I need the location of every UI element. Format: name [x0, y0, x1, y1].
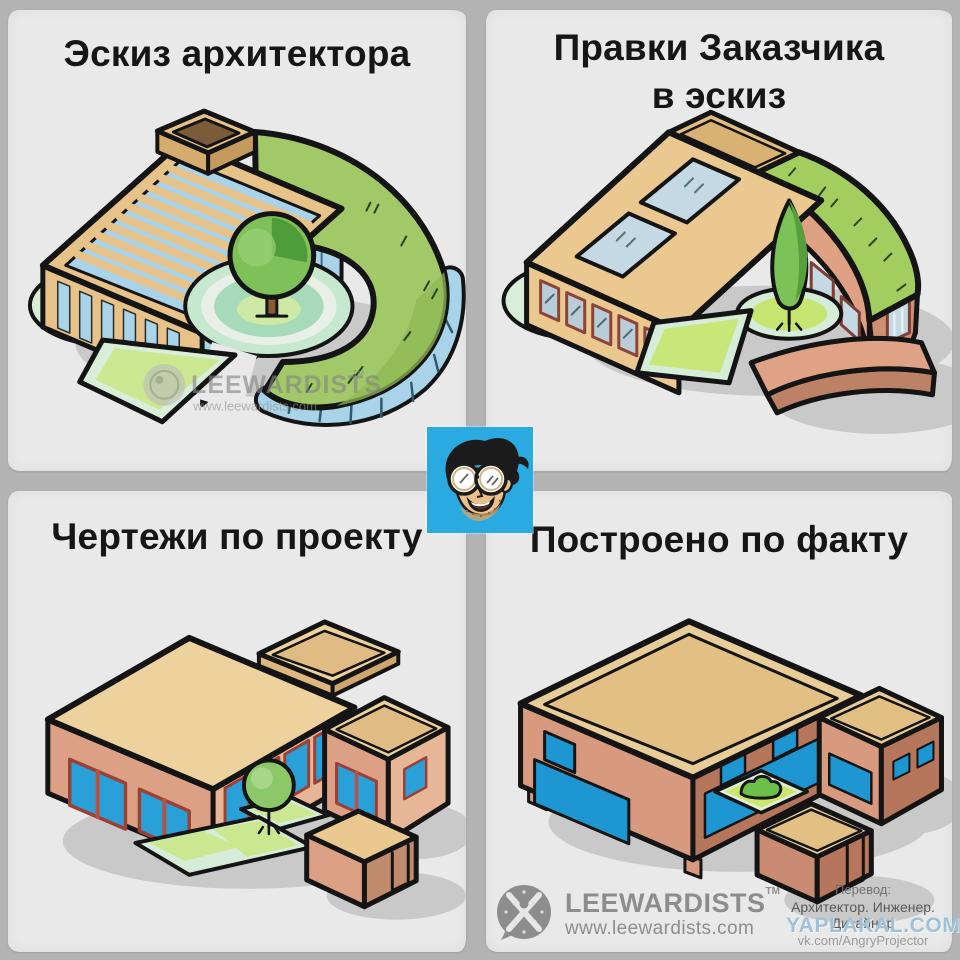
watermark-tm: TM — [352, 369, 363, 378]
brand-block: LEEWARDISTSTM www.leewardists.com — [565, 887, 780, 938]
panel-title-client-edits: Правки Заказчика в эскиз — [486, 10, 952, 120]
site-watermark: YAPLAKAL.COM — [786, 914, 960, 938]
leewardists-emblem-icon — [494, 882, 556, 944]
brand-name: LEEWARDISTSTM — [565, 887, 780, 917]
comic-image: LEEWARDISTS TM www.leewardists.com Эскиз… — [0, 0, 960, 960]
panel-title-blueprints: Чертежи по проекту — [8, 491, 466, 561]
author-avatar — [427, 427, 533, 533]
detached-lawn — [637, 311, 751, 383]
brand-url: www.leewardists.com — [565, 919, 780, 939]
panel-blueprints: Чертежи по проекту — [8, 491, 466, 952]
panel-title-as-built: Построено по факту — [486, 491, 952, 564]
panel-title-sketch: Эскиз архитектора — [8, 10, 466, 78]
watermark-url: www.leewardists.com — [192, 399, 317, 414]
translation-label: Перевод: — [772, 882, 954, 897]
footer-branding: LEEWARDISTSTM www.leewardists.com — [494, 878, 784, 948]
trademark: TM — [766, 886, 780, 897]
goggles-man-icon — [427, 427, 533, 533]
panel-client-edits: Правки Заказчика в эскиз — [486, 10, 952, 471]
panel-architect-sketch: LEEWARDISTS TM www.leewardists.com Эскиз… — [8, 10, 466, 471]
architect-sketch-illustration: LEEWARDISTS TM www.leewardists.com — [8, 10, 466, 471]
